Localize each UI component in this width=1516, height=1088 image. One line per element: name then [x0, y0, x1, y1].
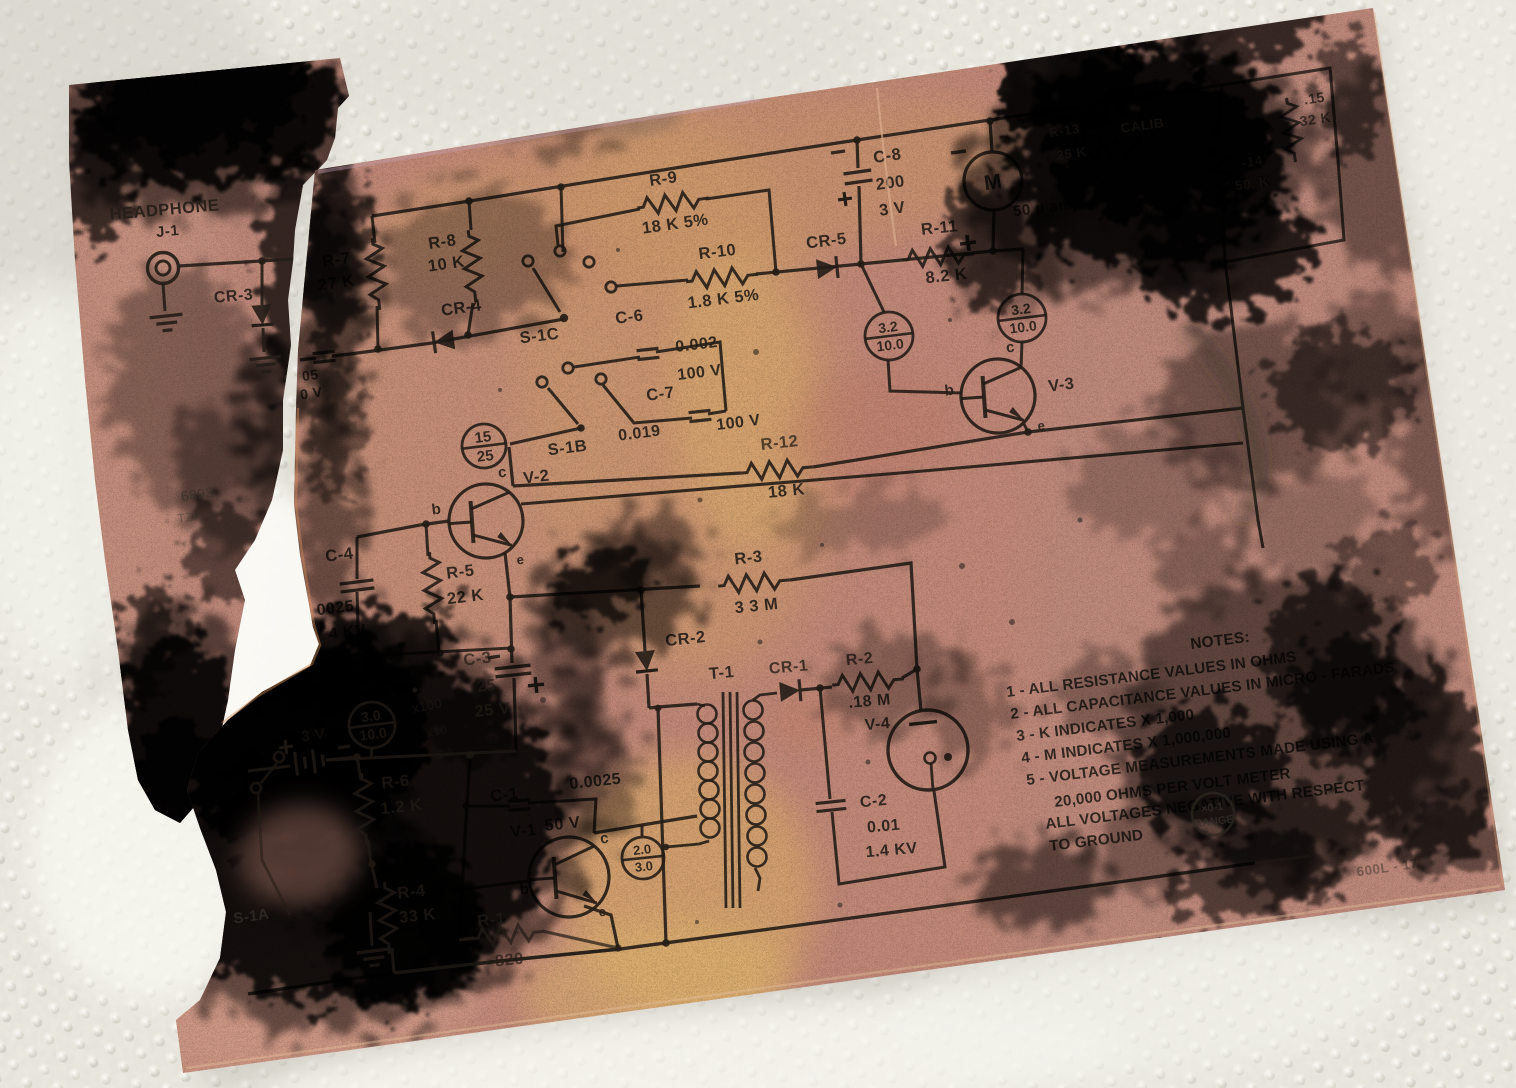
svg-text:3 V: 3 V [300, 726, 326, 746]
svg-text:V-2: V-2 [522, 467, 550, 488]
svg-text:V-3: V-3 [1047, 375, 1075, 396]
svg-text:C-3: C-3 [463, 649, 493, 670]
svg-text:CR-3: CR-3 [213, 286, 254, 306]
svg-text:C-2: C-2 [859, 792, 888, 811]
svg-text:33 K: 33 K [398, 905, 437, 927]
svg-text:J-1: J-1 [155, 222, 180, 241]
svg-text:b: b [944, 382, 956, 400]
svg-text:C-7: C-7 [645, 383, 675, 404]
svg-text:3.0: 3.0 [634, 858, 654, 875]
svg-text:25: 25 [476, 676, 497, 696]
svg-text:0.01: 0.01 [866, 817, 900, 837]
svg-text:25: 25 [476, 447, 495, 466]
svg-text:R-3: R-3 [734, 548, 764, 569]
svg-text:b: b [431, 501, 443, 519]
svg-text:C-6: C-6 [614, 306, 644, 327]
svg-text:-14: -14 [1241, 153, 1264, 171]
svg-text:3.2: 3.2 [877, 318, 898, 336]
svg-text:10.0: 10.0 [876, 335, 905, 354]
svg-text:T-1: T-1 [708, 663, 735, 683]
svg-text:R-5: R-5 [445, 561, 475, 582]
svg-text:R-6: R-6 [381, 772, 411, 793]
svg-text:10.0: 10.0 [1009, 317, 1038, 336]
svg-text:25 V: 25 V [474, 699, 512, 721]
svg-text:10.0: 10.0 [359, 724, 388, 743]
svg-text:15: 15 [474, 428, 493, 447]
svg-text:3.0: 3.0 [360, 707, 381, 725]
svg-text:2.0: 2.0 [632, 841, 652, 858]
svg-text:CR-1: CR-1 [768, 657, 809, 677]
svg-text:R-1: R-1 [477, 910, 507, 931]
svg-text:R-4: R-4 [397, 882, 427, 903]
